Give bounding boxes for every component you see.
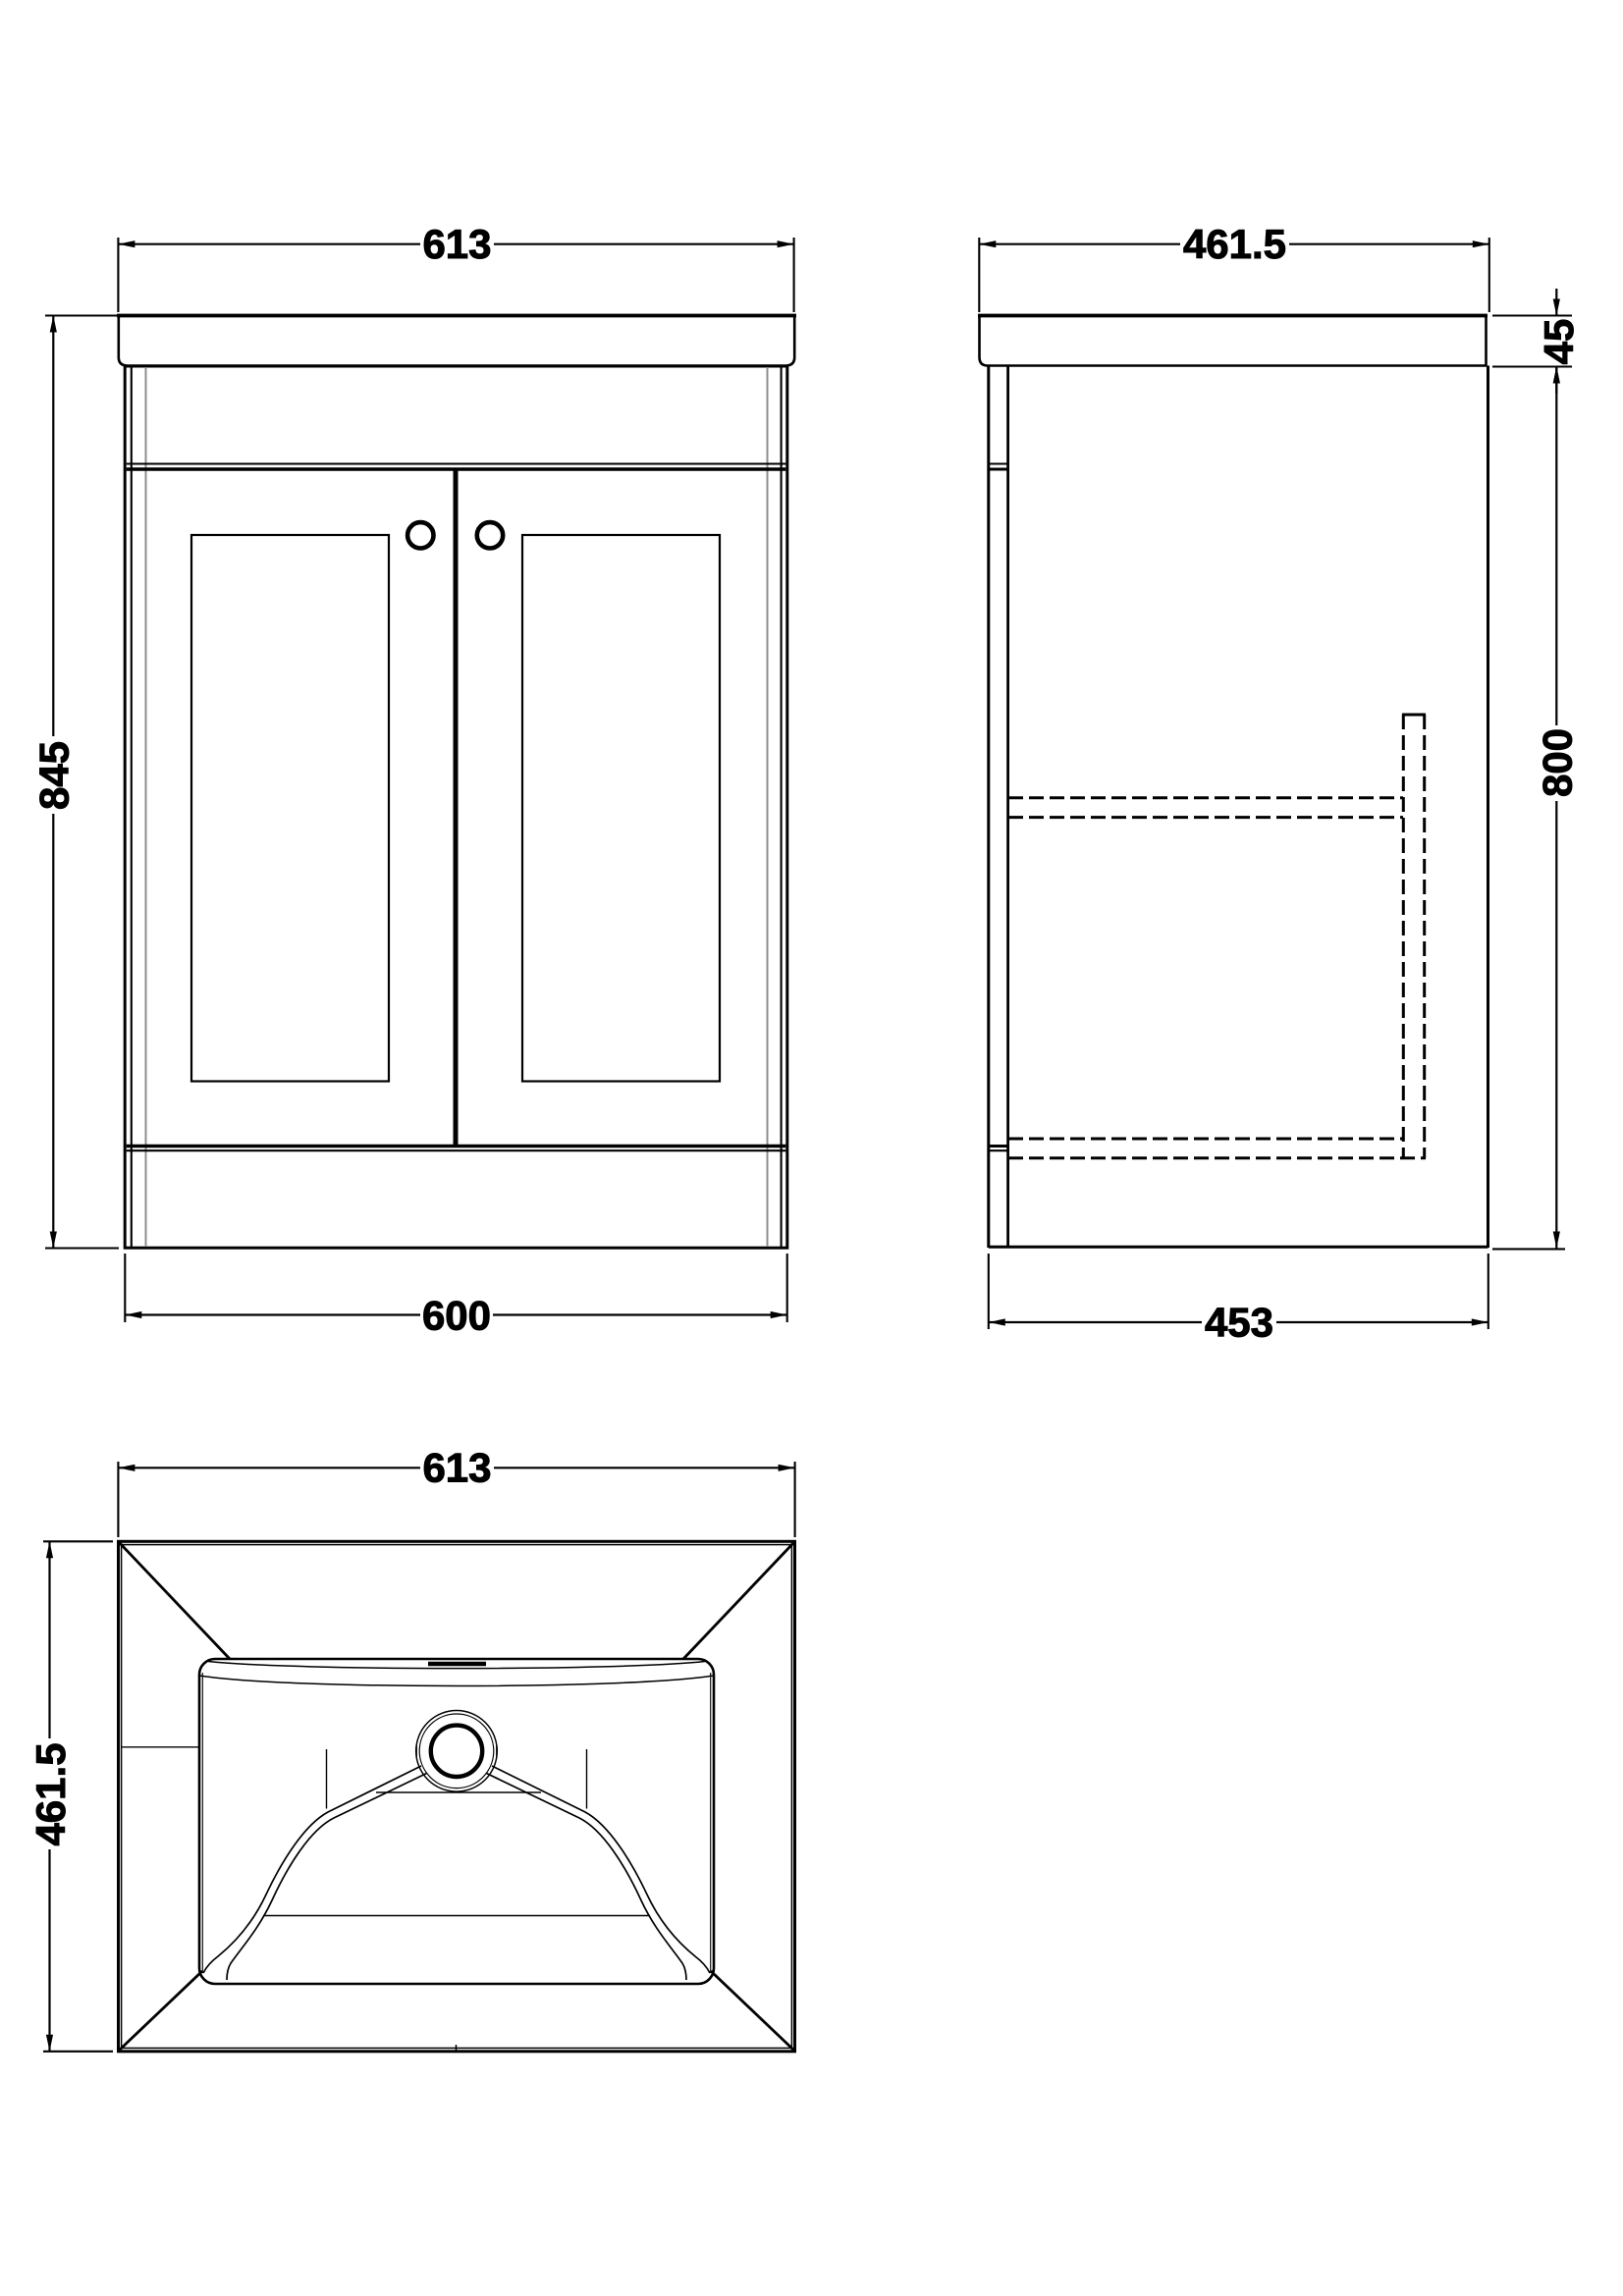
- svg-text:600: 600: [422, 1293, 491, 1339]
- svg-text:613: 613: [422, 221, 491, 267]
- svg-text:845: 845: [31, 741, 78, 810]
- svg-text:800: 800: [1535, 728, 1581, 797]
- svg-text:461.5: 461.5: [27, 1742, 74, 1845]
- svg-text:461.5: 461.5: [1183, 221, 1286, 267]
- svg-text:45: 45: [1536, 319, 1582, 365]
- svg-text:453: 453: [1205, 1300, 1273, 1346]
- svg-text:613: 613: [422, 1445, 491, 1491]
